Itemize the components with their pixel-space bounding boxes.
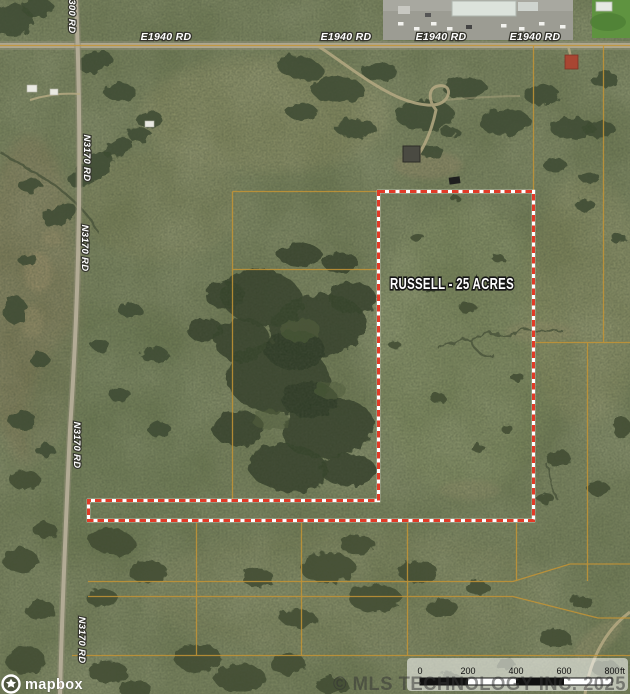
road-label-e1940-2: E1940 RD [321, 31, 372, 43]
road-label-e1940-3: E1940 RD [416, 31, 467, 43]
map-viewport[interactable]: E1940 RD E1940 RD E1940 RD E1940 RD N330… [0, 0, 630, 694]
parcel-label: RUSSELL - 25 ACRES [390, 276, 514, 293]
mapbox-logo[interactable]: mapbox [3, 676, 84, 694]
commercial-building [452, 1, 516, 16]
road-label-n3300-clipped: N3300 RD [66, 0, 77, 33]
road-label-n3170-2: N3170 RD [79, 225, 90, 272]
satellite-map[interactable]: E1940 RD E1940 RD E1940 RD E1940 RD N330… [0, 0, 630, 694]
mapbox-logo-text[interactable]: mapbox [25, 677, 83, 693]
road-label-n3170-4: N3170 RD [76, 617, 87, 664]
road-label-e1940-1: E1940 RD [141, 31, 192, 43]
noise-texture [0, 0, 630, 694]
dark-building [403, 146, 420, 162]
red-shed [565, 55, 578, 69]
road-label-e1940-4: E1940 RD [510, 31, 561, 43]
road-label-n3170-1: N3170 RD [81, 135, 92, 182]
mls-watermark: © MLS TECHNOLOGY INC. 2025 [333, 674, 626, 694]
road-label-n3170-3: N3170 RD [71, 422, 82, 469]
